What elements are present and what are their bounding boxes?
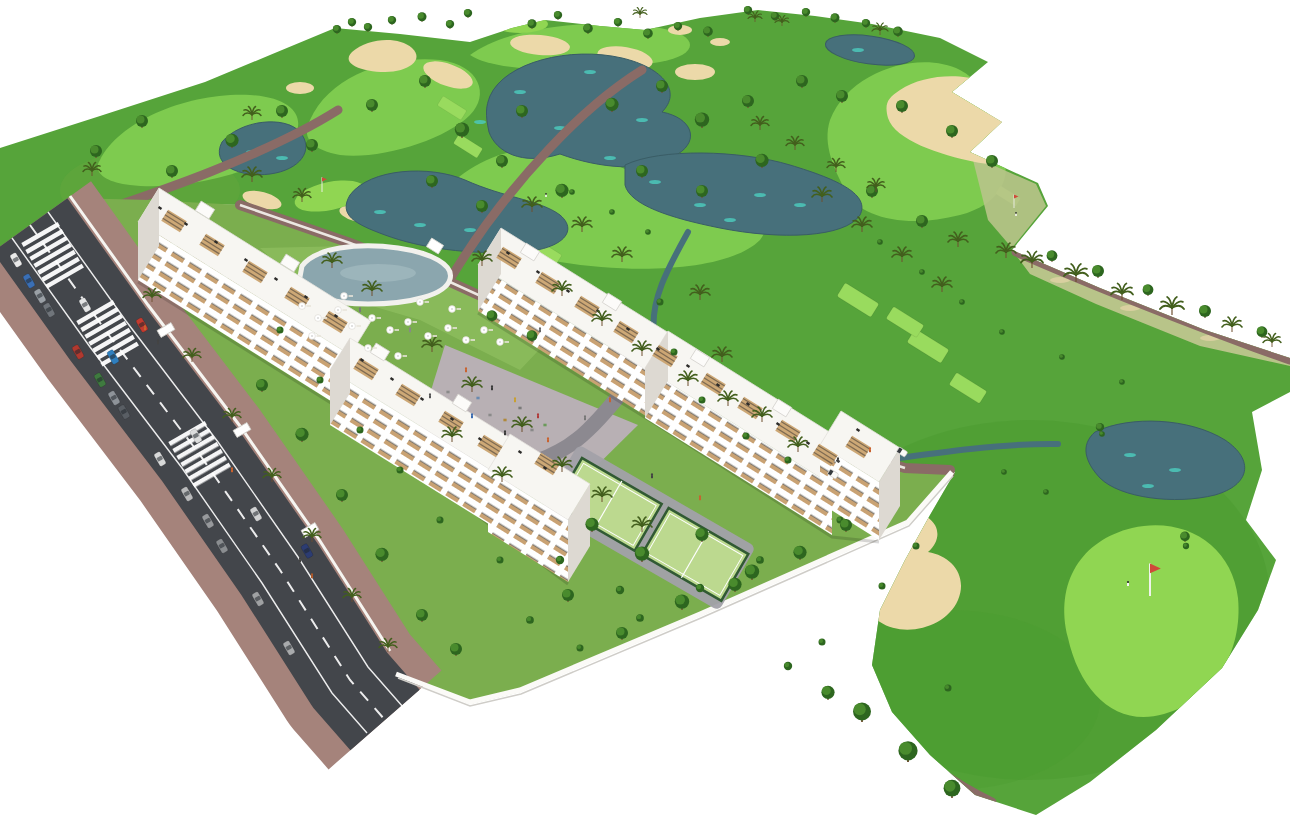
bush: [959, 299, 965, 305]
lake-highlight: [604, 156, 616, 160]
bush: [437, 517, 444, 524]
golfer: [1127, 581, 1129, 586]
lake-highlight: [636, 118, 648, 122]
playground-equipment: [543, 424, 546, 427]
bush: [1099, 431, 1105, 437]
playground-equipment: [476, 397, 479, 400]
pool-highlight: [340, 264, 416, 282]
bush: [743, 433, 750, 440]
person: [144, 325, 146, 330]
person: [584, 415, 586, 420]
lake-highlight: [1169, 468, 1181, 472]
bush: [919, 269, 925, 275]
person: [609, 397, 611, 402]
lake-highlight: [1124, 453, 1136, 457]
bush: [616, 586, 624, 594]
person: [299, 557, 301, 562]
playground-equipment: [503, 419, 506, 422]
playground-equipment: [518, 407, 521, 410]
lake-highlight: [276, 156, 288, 160]
lake-highlight: [649, 180, 661, 184]
bush: [636, 614, 644, 622]
bush: [526, 616, 534, 624]
lake-highlight: [754, 193, 766, 197]
bush: [1119, 379, 1125, 385]
bush: [657, 299, 664, 306]
bush: [577, 645, 584, 652]
person: [157, 339, 159, 344]
bush: [879, 583, 886, 590]
person: [471, 413, 473, 418]
person: [359, 307, 361, 312]
bush: [645, 229, 651, 235]
person: [651, 473, 653, 478]
bush: [699, 397, 706, 404]
person: [837, 457, 839, 462]
golfer: [1015, 212, 1017, 216]
masterplan-render: [0, 0, 1290, 840]
bush: [556, 556, 564, 564]
person: [231, 467, 233, 472]
playground-equipment: [488, 414, 491, 417]
lake-highlight: [464, 228, 476, 232]
bush: [756, 556, 764, 564]
person: [869, 447, 871, 452]
bush: [671, 349, 678, 356]
bush: [999, 329, 1005, 335]
lake-highlight: [724, 218, 736, 222]
bush: [497, 557, 504, 564]
playground-equipment: [530, 429, 533, 432]
person: [409, 327, 411, 332]
lake-highlight: [694, 203, 706, 207]
playground-equipment: [446, 391, 449, 394]
bush: [1001, 469, 1007, 475]
person: [699, 495, 701, 500]
bush: [569, 189, 575, 195]
bush: [913, 543, 920, 550]
lake-highlight: [584, 70, 596, 74]
lake-highlight: [852, 48, 864, 52]
bush: [877, 239, 883, 245]
person: [311, 573, 313, 578]
person: [429, 393, 431, 398]
bush: [1043, 489, 1049, 495]
golfer: [545, 193, 547, 197]
person: [504, 430, 506, 435]
lake-highlight: [474, 120, 486, 124]
bush: [1183, 543, 1189, 549]
lake-highlight: [414, 223, 426, 227]
bush: [696, 584, 704, 592]
lake-highlight: [514, 90, 526, 94]
bush: [277, 327, 284, 334]
bush: [609, 209, 615, 215]
bush: [317, 377, 324, 384]
person: [491, 385, 493, 390]
person: [537, 413, 539, 418]
bush: [785, 457, 792, 464]
lake-highlight: [1142, 484, 1154, 488]
lake-highlight: [794, 203, 806, 207]
person: [547, 437, 549, 442]
person: [539, 327, 541, 332]
bush: [819, 639, 826, 646]
bush: [1059, 354, 1065, 360]
person: [514, 397, 516, 402]
bush: [397, 467, 404, 474]
render-canvas: [0, 0, 1290, 840]
lake-highlight: [374, 210, 386, 214]
bush: [357, 427, 364, 434]
bush: [945, 685, 952, 692]
bush: [784, 662, 792, 670]
person: [465, 367, 467, 372]
